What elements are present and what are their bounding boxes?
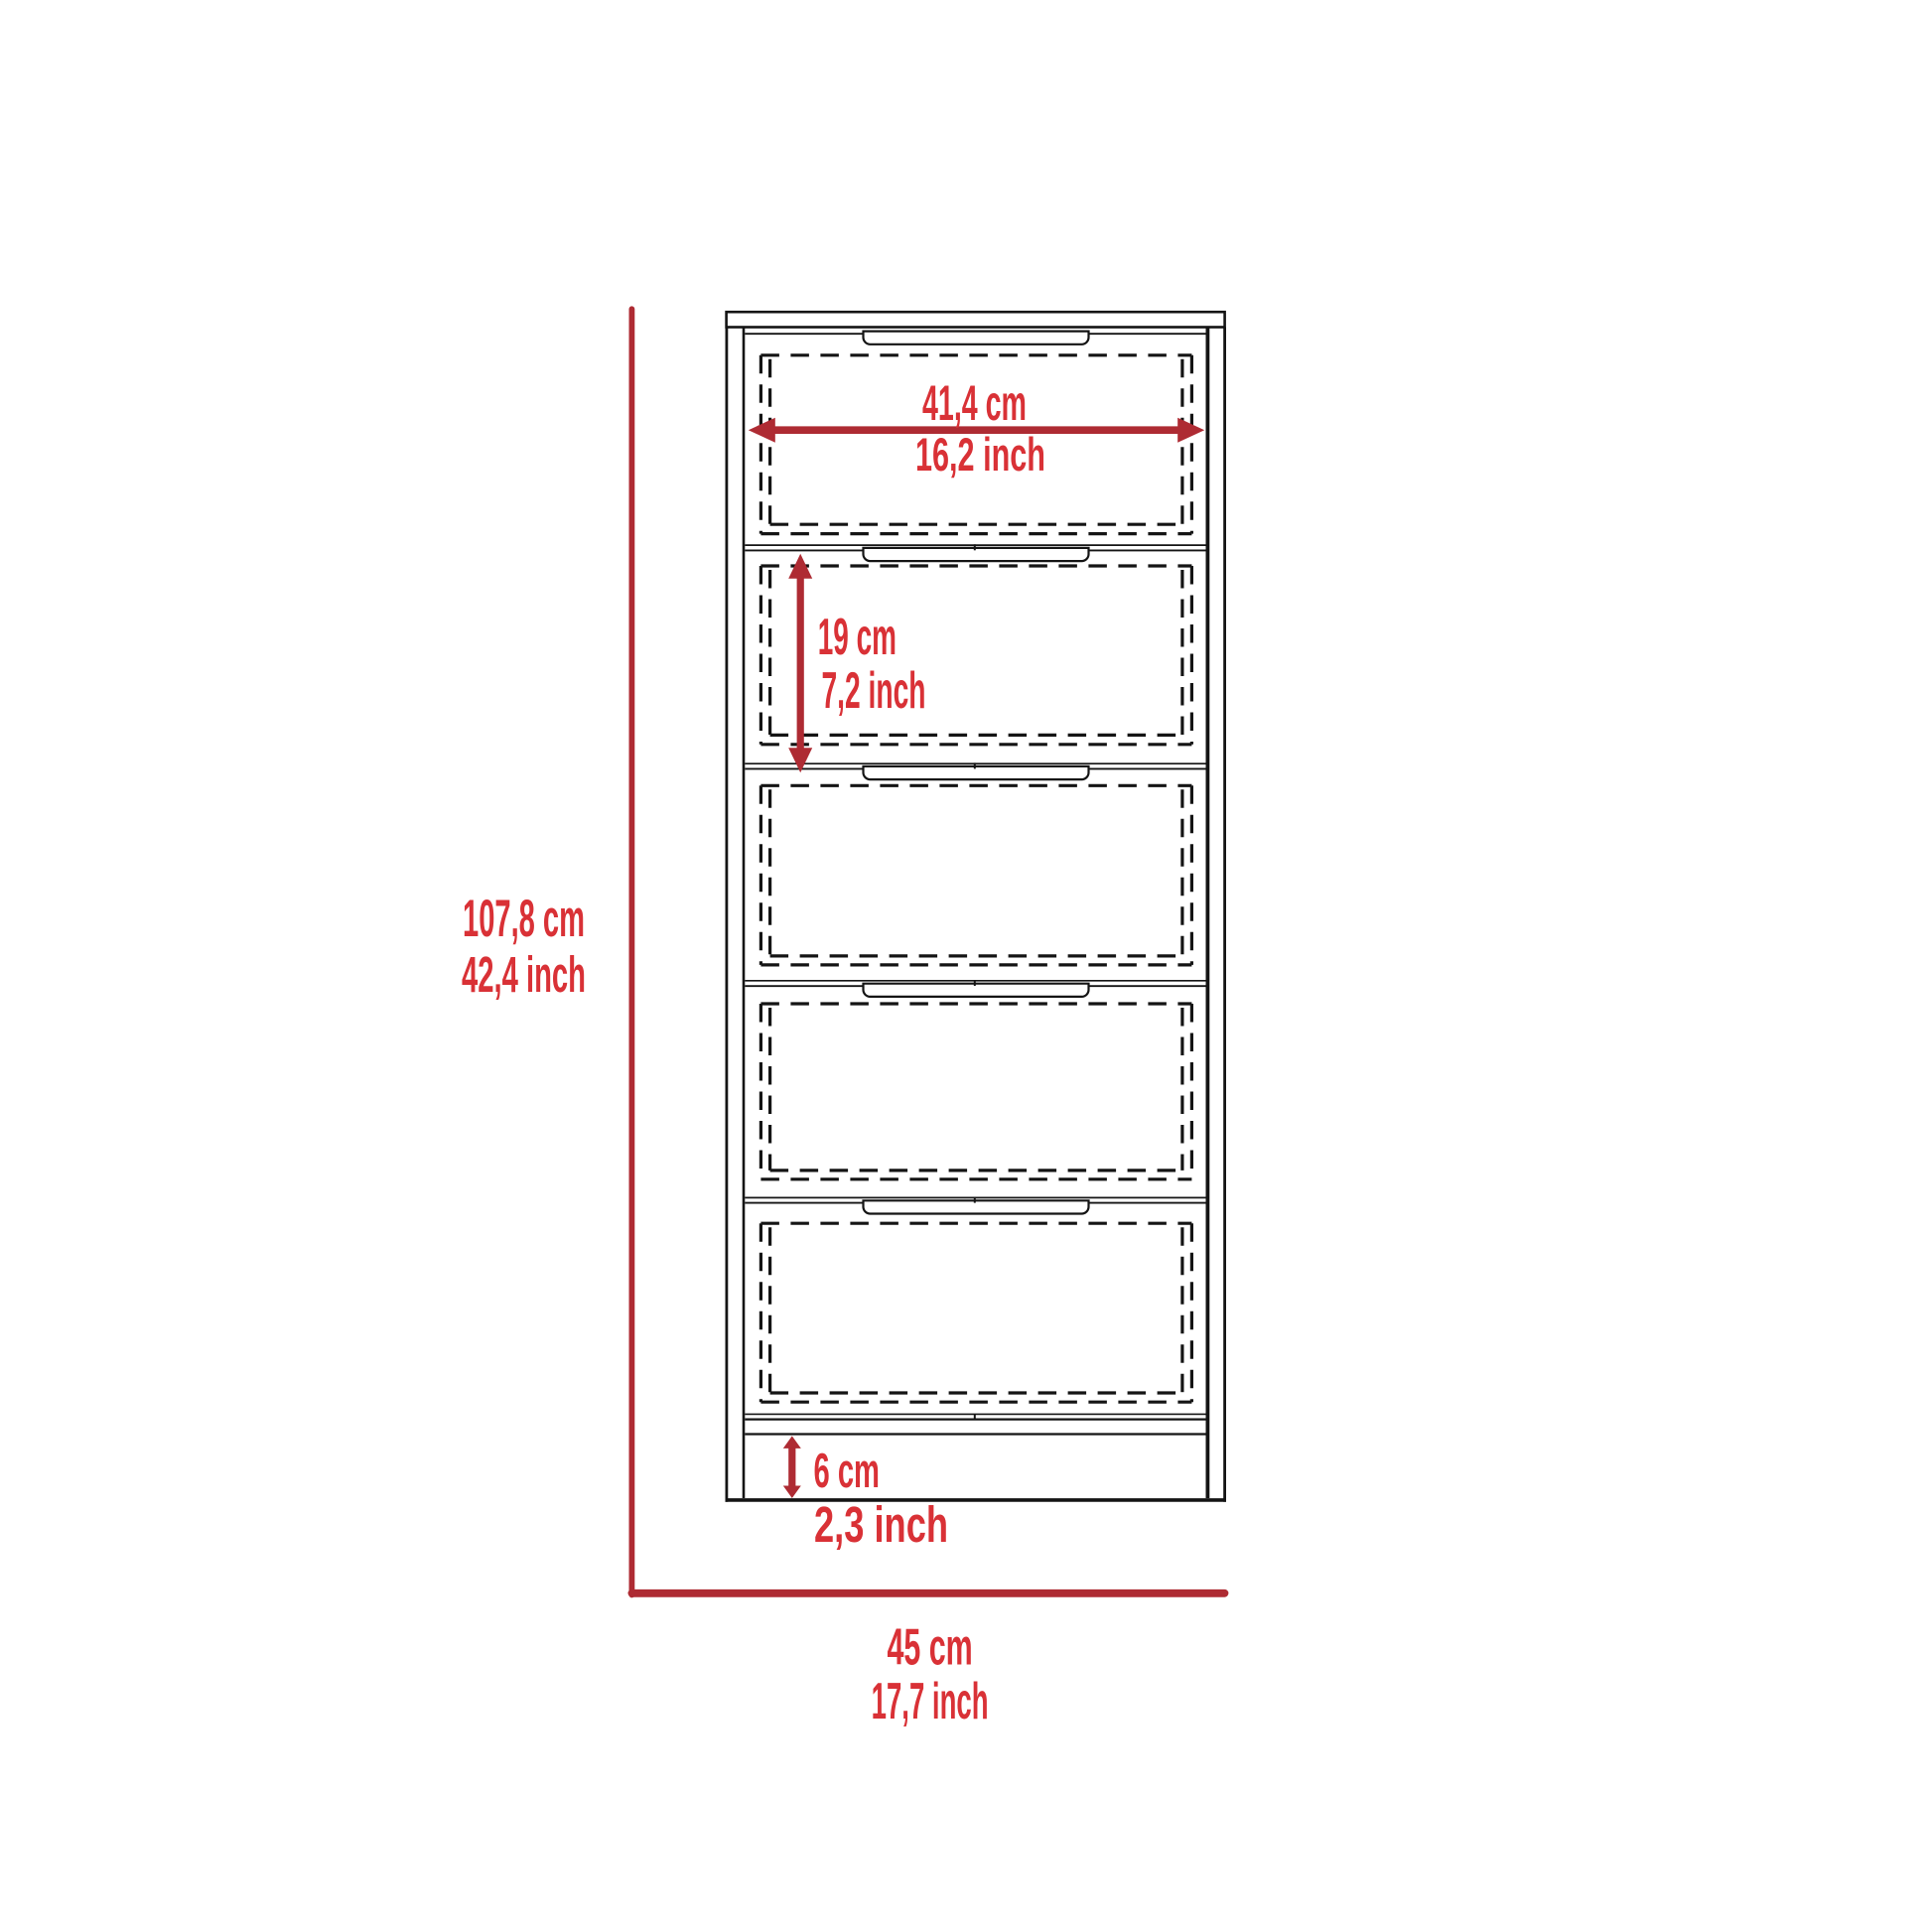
- svg-text:2,3 inch: 2,3 inch: [814, 1496, 948, 1553]
- svg-text:17,7 inch: 17,7 inch: [872, 1673, 989, 1730]
- svg-text:19 cm: 19 cm: [818, 609, 897, 666]
- svg-text:7,2 inch: 7,2 inch: [822, 662, 926, 720]
- svg-text:6 cm: 6 cm: [814, 1445, 881, 1498]
- svg-text:42,4 inch: 42,4 inch: [462, 946, 586, 1003]
- svg-text:41,4 cm: 41,4 cm: [922, 375, 1027, 431]
- svg-text:45 cm: 45 cm: [887, 1618, 972, 1676]
- svg-text:107,8 cm: 107,8 cm: [463, 890, 585, 948]
- svg-text:16,2 inch: 16,2 inch: [915, 428, 1045, 481]
